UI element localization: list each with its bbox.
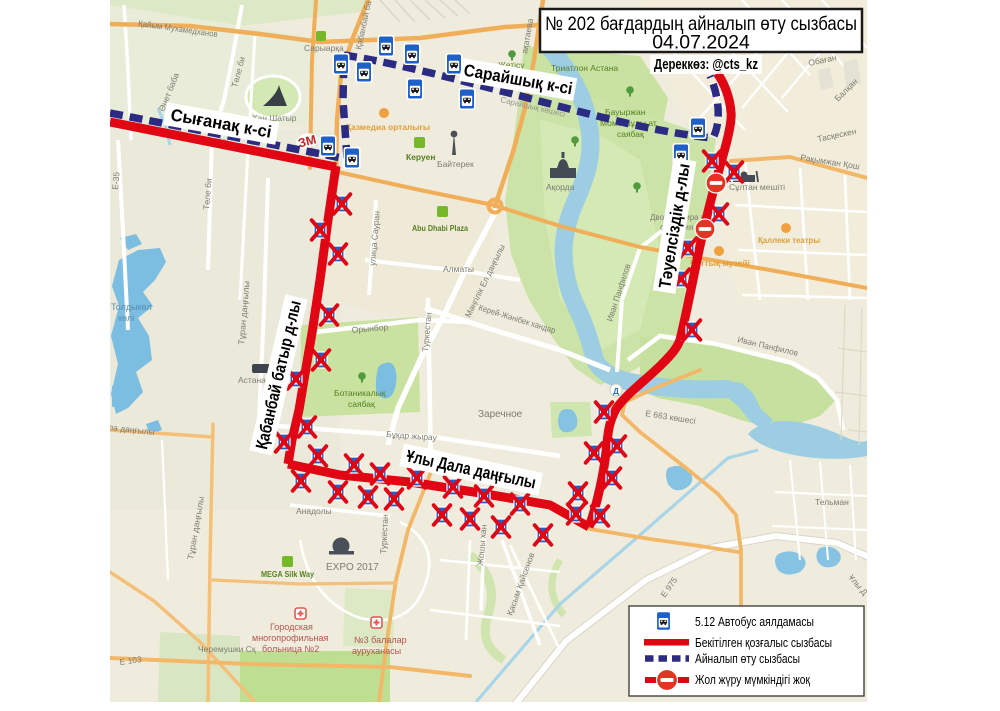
svg-text:Анадолы: Анадолы <box>296 506 332 516</box>
svg-text:Д: Д <box>613 387 619 396</box>
svg-text:EXPO 2017: EXPO 2017 <box>326 562 379 573</box>
svg-text:Айналып өту сызбасы: Айналып өту сызбасы <box>695 652 800 666</box>
svg-text:Триатлон Астана: Триатлон Астана <box>551 63 618 73</box>
svg-text:Астана: Астана <box>238 375 266 385</box>
svg-text:04.07.2024: 04.07.2024 <box>652 32 750 54</box>
svg-text:саябақ: саябақ <box>348 399 375 409</box>
svg-text:Черемушки Сқ: Черемушки Сқ <box>198 644 256 654</box>
svg-text:Бауыржан: Бауыржан <box>605 107 646 117</box>
svg-text:Жол жүру мүмкіндігі жоқ: Жол жүру мүмкіндігі жоқ <box>695 673 810 687</box>
svg-text:Е-35: Е-35 <box>110 171 122 190</box>
svg-text:Abu Dhabi Plaza: Abu Dhabi Plaza <box>412 224 468 233</box>
svg-text:Туркестан: Туркестан <box>378 514 390 554</box>
svg-text:Тельман: Тельман <box>815 497 849 507</box>
svg-text:Сарыарқа: Сарыарқа <box>304 43 344 53</box>
svg-text:Алматы: Алматы <box>443 264 474 274</box>
svg-text:больница №2: больница №2 <box>262 644 319 654</box>
svg-text:Заречное: Заречное <box>478 409 523 420</box>
svg-text:Ботаникалық: Ботаникалық <box>334 388 386 398</box>
svg-text:Ақорда: Ақорда <box>546 182 575 192</box>
svg-text:MEGA Silk Way: MEGA Silk Way <box>261 570 314 579</box>
svg-text:Қазмедиа орталығы: Қазмедиа орталығы <box>346 122 430 132</box>
svg-text:Дереккөз: @cts_kz: Дереккөз: @cts_kz <box>654 56 758 73</box>
svg-text:Толдыкөл: Толдыкөл <box>111 302 152 312</box>
svg-text:Сұлтан мешіті: Сұлтан мешіті <box>729 182 785 192</box>
svg-text:Городская: Городская <box>270 622 313 632</box>
svg-text:Бекітілген қозғалыс сызбасы: Бекітілген қозғалыс сызбасы <box>695 636 832 650</box>
svg-text:Керуен: Керуен <box>406 152 435 162</box>
svg-text:көлі: көлі <box>118 313 134 323</box>
svg-text:ауруханасы: ауруханасы <box>352 646 401 656</box>
svg-text:Қаллеки театры: Қаллеки театры <box>758 235 820 245</box>
svg-text:Байтерек: Байтерек <box>437 159 474 169</box>
svg-text:многопрофильная: многопрофильная <box>252 633 328 643</box>
svg-text:саябақ: саябақ <box>617 129 644 139</box>
svg-text:№3 балалар: №3 балалар <box>354 635 407 645</box>
svg-text:5.12 Автобус аялдамасы: 5.12 Автобус аялдамасы <box>695 615 814 629</box>
